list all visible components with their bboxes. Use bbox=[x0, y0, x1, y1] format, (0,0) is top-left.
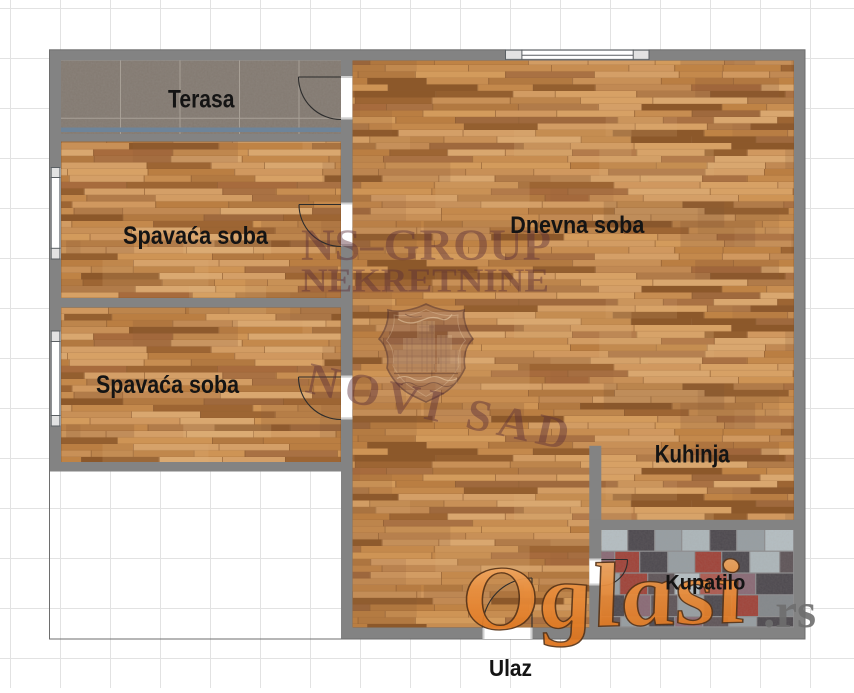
svg-text:Terasa: Terasa bbox=[168, 86, 235, 114]
svg-text:Dnevna soba: Dnevna soba bbox=[510, 212, 644, 239]
svg-text:Kuhinja: Kuhinja bbox=[655, 440, 731, 468]
svg-text:Spavaća soba: Spavaća soba bbox=[123, 222, 269, 250]
svg-text:Ulaz: Ulaz bbox=[489, 655, 532, 681]
svg-text:Spavaća soba: Spavaća soba bbox=[96, 371, 240, 399]
svg-text:Kupatilo: Kupatilo bbox=[665, 572, 745, 595]
svg-text:Oglasi: Oglasi bbox=[453, 541, 752, 650]
svg-text:.rs: .rs bbox=[763, 583, 816, 638]
svg-text:NEKRETNINE: NEKRETNINE bbox=[301, 263, 549, 300]
